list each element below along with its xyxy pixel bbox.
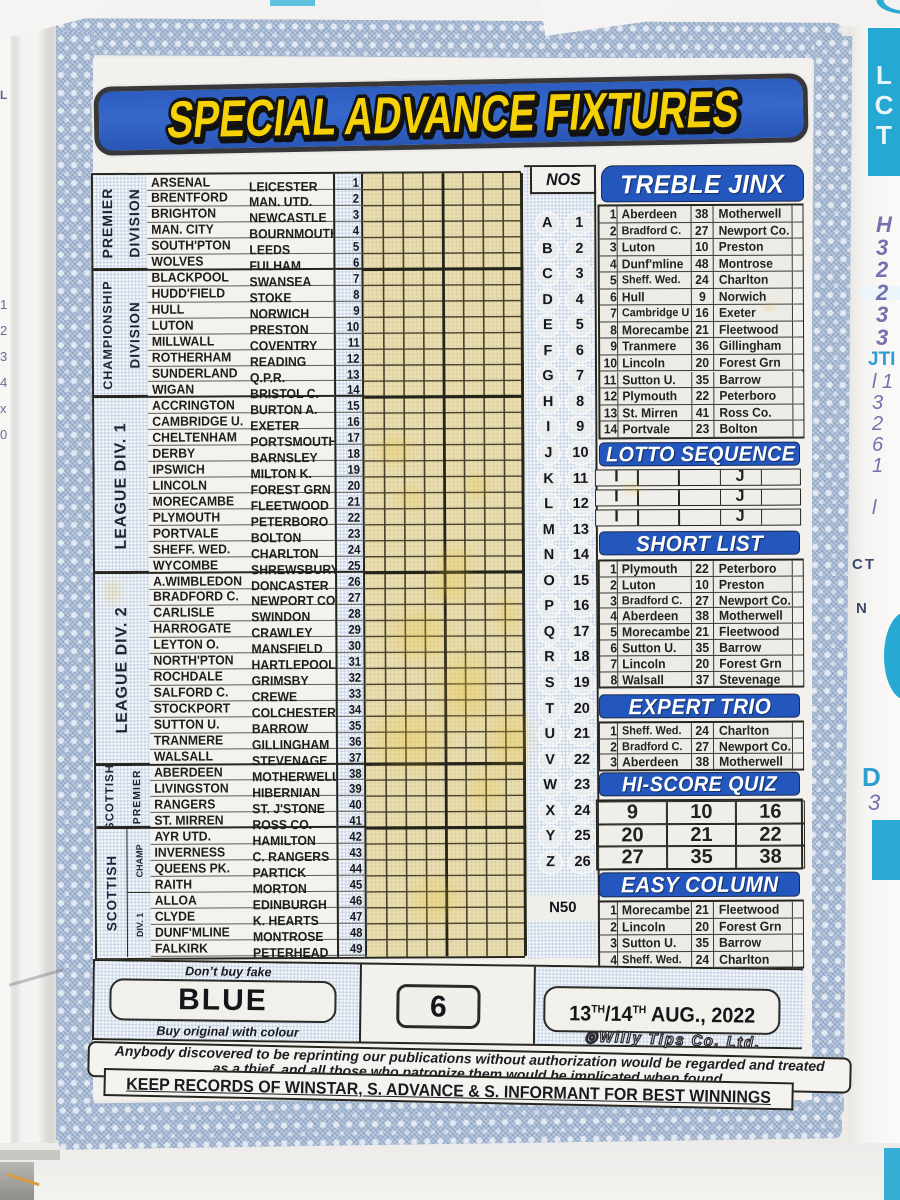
svg-text:SPECIAL ADVANCE FIXTURES: SPECIAL ADVANCE FIXTURES	[165, 79, 743, 149]
